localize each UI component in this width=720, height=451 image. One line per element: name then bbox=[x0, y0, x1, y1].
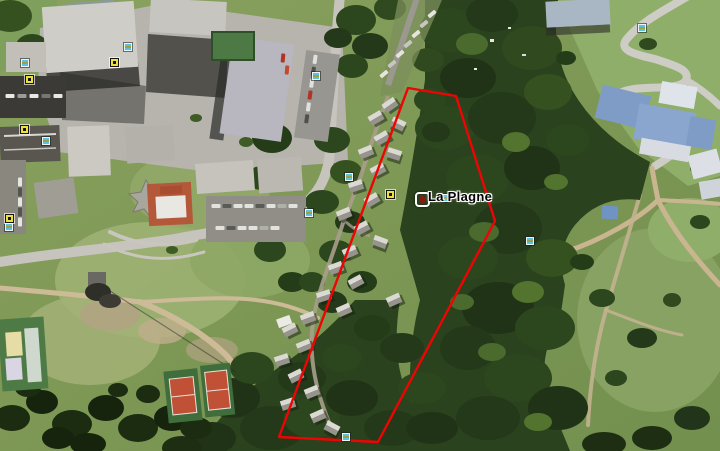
photo-poi-icon[interactable] bbox=[638, 24, 646, 32]
photo-poi-icon[interactable] bbox=[124, 43, 132, 51]
photo-poi-icon[interactable] bbox=[42, 137, 50, 145]
photo-poi-icon[interactable] bbox=[342, 433, 350, 441]
lodging-poi-icon[interactable] bbox=[20, 125, 29, 134]
photo-poi-icon[interactable] bbox=[21, 59, 29, 67]
poi-layer bbox=[0, 0, 720, 451]
lodging-poi-icon[interactable] bbox=[386, 190, 395, 199]
photo-poi-icon[interactable] bbox=[312, 72, 320, 80]
placemark-dot-icon bbox=[419, 196, 426, 203]
photo-poi-icon[interactable] bbox=[345, 173, 353, 181]
photo-poi-icon[interactable] bbox=[305, 209, 313, 217]
photo-poi-icon[interactable] bbox=[526, 237, 534, 245]
lodging-poi-icon[interactable] bbox=[110, 58, 119, 67]
placemark-label: La Plagne bbox=[428, 189, 492, 204]
lodging-poi-icon[interactable] bbox=[5, 214, 14, 223]
photo-poi-icon[interactable] bbox=[5, 223, 13, 231]
placemark[interactable]: La Plagne bbox=[415, 192, 430, 207]
lodging-poi-icon[interactable] bbox=[25, 75, 34, 84]
map-viewport[interactable]: La Plagne bbox=[0, 0, 720, 451]
